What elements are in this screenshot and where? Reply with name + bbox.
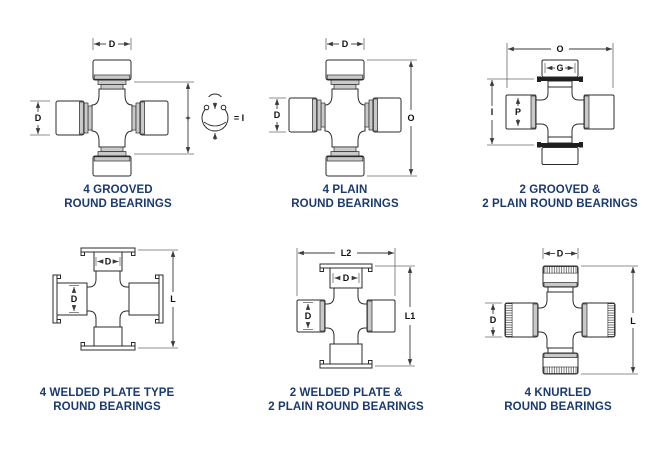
dim-label-top-d: D (109, 39, 116, 49)
ujoint-cross-plain (289, 60, 401, 176)
dim-left-diameter: D (269, 98, 286, 132)
dim-top-diameter: D (326, 38, 364, 50)
caption-line-2: 2 PLAIN ROUND BEARINGS (450, 198, 670, 212)
diagram-2-welded-2-plain-round-bearings: L2 L1 D D (236, 240, 456, 390)
dim-left-diameter: D (30, 101, 50, 135)
snap-ring-icon (202, 94, 228, 140)
caption-line-1: 4 KNURLED (448, 387, 668, 401)
dim-label-o: O (407, 113, 414, 123)
dim-label-l: L (170, 294, 176, 304)
dim-label-o: O (556, 44, 563, 54)
caption-line-2: 2 PLAIN ROUND BEARINGS (236, 401, 456, 415)
caption-4-grooved: 4 GROOVED ROUND BEARINGS (8, 184, 228, 211)
caption-2-grooved-2-plain: 2 GROOVED & 2 PLAIN ROUND BEARINGS (450, 184, 670, 211)
dim-label-top-d: D (557, 249, 564, 259)
dim-label-l1: L1 (405, 311, 416, 321)
dim-label-left-d: D (71, 294, 78, 304)
ujoint-cross-mixed (506, 60, 614, 165)
dim-label-l: L (630, 316, 636, 326)
dim-label-top-d: D (342, 39, 349, 49)
caption-line-1: 4 GROOVED (8, 184, 228, 198)
diagram-4-welded-plate-round-bearings: L D D (5, 235, 220, 390)
dim-label-left-d: D (274, 110, 281, 120)
dim-label-equals-i: = I (234, 113, 244, 123)
caption-4-plain: 4 PLAIN ROUND BEARINGS (235, 184, 455, 211)
caption-line-2: ROUND BEARINGS (448, 401, 668, 415)
dim-label-l2: L2 (341, 248, 352, 258)
caption-line-2: ROUND BEARINGS (0, 401, 214, 415)
caption-2-welded-2-plain: 2 WELDED PLATE & 2 PLAIN ROUND BEARINGS (236, 387, 456, 414)
dim-label-g: G (556, 63, 563, 73)
diagram-4-grooved-round-bearings: D D + (8, 30, 253, 185)
caption-line-1: 4 WELDED PLATE TYPE (0, 387, 214, 401)
diagram-2-grooved-2-plain-round-bearings: O I G P (478, 30, 668, 185)
caption-4-knurled: 4 KNURLED ROUND BEARINGS (448, 387, 668, 414)
dim-label-left-d: D (490, 315, 497, 325)
dim-label-plus: + (185, 113, 190, 123)
caption-line-1: 2 WELDED PLATE & (236, 387, 456, 401)
ujoint-cross-grooved (56, 60, 168, 176)
caption-line-2: ROUND BEARINGS (8, 198, 228, 212)
bearing-types-sheet: D D + (0, 0, 670, 450)
dim-label-p: P (515, 107, 521, 117)
dim-top-diameter: D (93, 38, 131, 50)
dim-label-left-d: D (305, 311, 312, 321)
dim-label-left-d: D (35, 113, 42, 123)
dim-left-diameter: D (485, 303, 502, 337)
dim-top-diameter: D (543, 248, 578, 259)
ujoint-cross-knurled (505, 266, 615, 374)
caption-line-1: 2 GROOVED & (450, 184, 670, 198)
diagram-4-plain-round-bearings: D D O (255, 30, 470, 185)
dim-label-top-d: D (105, 257, 112, 267)
caption-line-2: ROUND BEARINGS (235, 198, 455, 212)
dim-label-i: I (491, 107, 494, 117)
dim-label-top-d: D (343, 273, 350, 283)
diagram-4-knurled-round-bearings: D D L (455, 240, 668, 390)
caption-4-welded-plate: 4 WELDED PLATE TYPE ROUND BEARINGS (0, 387, 214, 414)
caption-line-1: 4 PLAIN (235, 184, 455, 198)
